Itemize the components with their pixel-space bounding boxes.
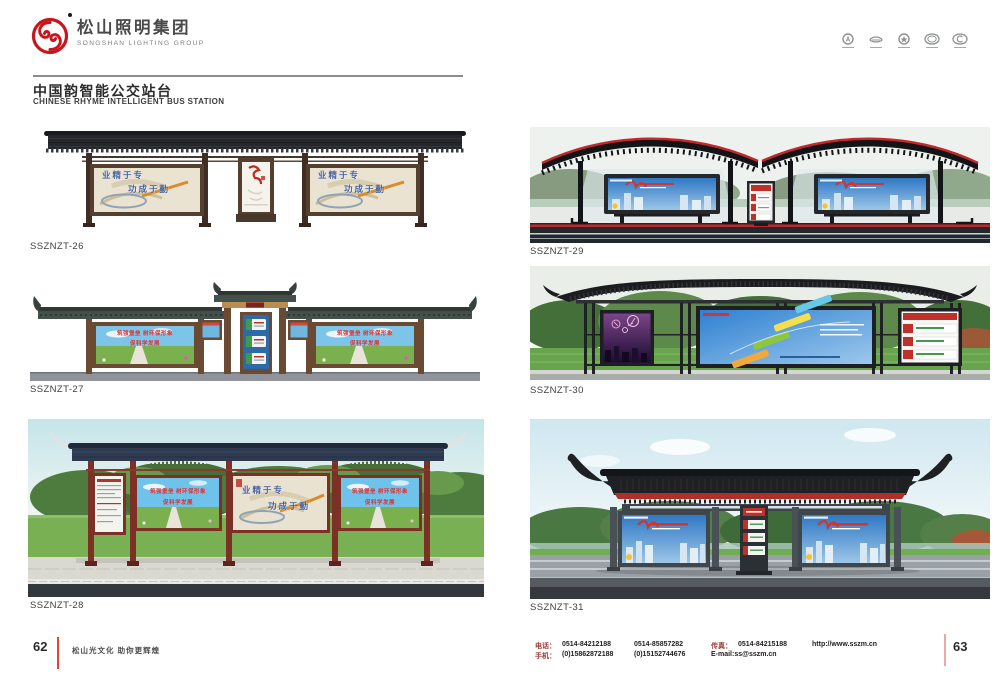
fax-number: 0514-84215188: [738, 641, 787, 648]
poster-slogan: 筑强堡垒 树环保形象: [96, 332, 194, 338]
info-totem: [747, 181, 775, 226]
product-card-ssznzt-29: [530, 127, 990, 243]
poster-slogan: 促科学发展: [316, 342, 414, 348]
brand-name-cn: 松山照明集团: [77, 20, 205, 37]
ad-lightbox: [814, 174, 930, 214]
phone-number-1: 0514-84212188: [562, 641, 611, 648]
brand-logo: 松山照明集团 SONGSHAN LIGHTING GROUP: [30, 16, 205, 56]
footer-tagline: 松山光文化 助你更辉煌: [72, 645, 160, 656]
product-render-bus-shelter: [530, 127, 990, 243]
poster-slogan: 功成于勤: [268, 502, 310, 511]
fax-label: 传真：: [711, 641, 732, 651]
product-render-bus-shelter: [530, 419, 990, 599]
product-code: SSZNZT-29: [530, 246, 584, 257]
website-url: http://www.sszm.cn: [812, 641, 877, 648]
product-card-ssznzt-31: [530, 419, 990, 599]
info-totem: [736, 505, 772, 575]
route-info-board: [898, 308, 962, 366]
ad-lightbox: [798, 511, 890, 567]
product-render-bus-shelter: [30, 124, 480, 236]
ad-lightbox: [618, 511, 710, 567]
info-totem: [236, 158, 276, 222]
cert-badge-icon: [951, 33, 968, 50]
footer-divider-right: [944, 634, 946, 666]
header-divider: [33, 75, 463, 77]
product-render-bus-shelter: [530, 266, 990, 380]
route-info-board: [92, 473, 126, 535]
email-address: E-mail:ss@sszm.cn: [711, 651, 777, 658]
page-number-right: 63: [953, 639, 967, 654]
cert-badge-icon: [867, 33, 884, 50]
product-code: SSZNZT-31: [530, 602, 584, 613]
page-number-left: 62: [33, 639, 47, 654]
product-render-bus-shelter: [28, 419, 484, 597]
certification-badges: [839, 33, 968, 50]
cert-badge-icon: [923, 33, 940, 50]
phone-number-2: 0514-85857282: [634, 641, 683, 648]
poster-slogan: 筑强堡垒 树环保形象: [316, 332, 414, 338]
product-code: SSZNZT-27: [30, 384, 84, 395]
cert-badge-icon: [839, 33, 856, 50]
mobile-label: 手机：: [535, 651, 556, 661]
product-card-ssznzt-30: [530, 266, 990, 380]
mobile-number-2: (0)15152744676: [634, 651, 685, 658]
poster-slogan: 促科学发展: [341, 501, 419, 507]
poster-slogan: 业精于专: [318, 171, 360, 180]
poster-slogan: 业精于专: [102, 171, 144, 180]
page-title-en: CHINESE RHYME INTELLIGENT BUS STATION: [33, 97, 224, 106]
mobile-number-1: (0)15862872188: [562, 651, 613, 658]
poster-slogan: 筑强堡垒 树环保形象: [341, 490, 419, 496]
brand-name-en: SONGSHAN LIGHTING GROUP: [77, 40, 205, 47]
catalog-page: 松山照明集团 SONGSHAN LIGHTING GROUP 中国韵智能公交站台…: [0, 0, 1000, 683]
poster-slogan: 业精于专: [242, 486, 284, 495]
cert-badge-icon: [895, 33, 912, 50]
product-code: SSZNZT-26: [30, 241, 84, 252]
brand-swirl-icon: [30, 16, 70, 56]
ad-lightbox: [600, 310, 654, 366]
poster-slogan: 筑强堡垒 树环保形象: [137, 490, 219, 496]
info-totem: [240, 312, 272, 374]
trademark-dot-icon: [68, 13, 72, 17]
footer-divider-left: [57, 637, 59, 669]
poster-slogan: 促科学发展: [96, 342, 194, 348]
product-code: SSZNZT-28: [30, 600, 84, 611]
product-code: SSZNZT-30: [530, 385, 584, 396]
product-card-ssznzt-28: 筑强堡垒 树环保形象 促科学发展 业精于专 功成于勤 筑强堡垒 树环保形象 促科…: [28, 419, 484, 597]
product-card-ssznzt-27: 筑强堡垒 树环保形象 促科学发展 筑强堡垒 树环保形象 促科学发展: [30, 282, 480, 384]
poster-slogan: 功成于勤: [344, 185, 386, 194]
ad-lightbox: [604, 174, 720, 214]
poster-slogan: 功成于勤: [128, 185, 170, 194]
product-card-ssznzt-26: 业精于专 功成于勤 业精于专 功成于勤: [30, 124, 480, 238]
poster-slogan: 促科学发展: [137, 501, 219, 507]
phone-label: 电话：: [535, 641, 556, 651]
